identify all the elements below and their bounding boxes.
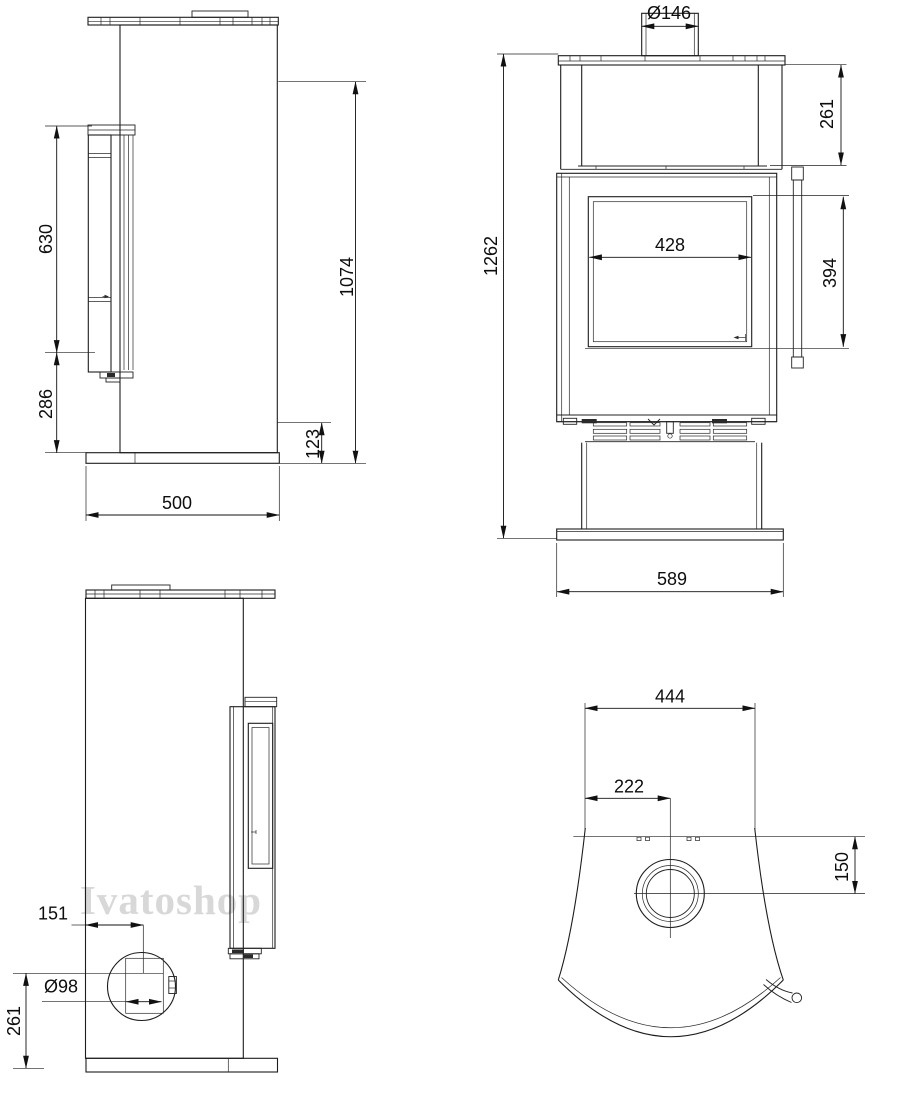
top-plate (558, 56, 785, 65)
door-bottom-hinge-pin (232, 950, 244, 954)
door-frame-panel (111, 135, 120, 372)
dim-label-glass-width: 428 (655, 235, 685, 255)
door-bottom-hinge (106, 378, 120, 382)
side-view-bottom-left: 151 Ø98 261 (4, 585, 278, 1072)
glass-outer (588, 197, 751, 347)
dim-label-total-height: 1262 (481, 236, 501, 276)
grille-slot (680, 436, 710, 440)
right-side-edge (755, 828, 784, 980)
top-view: 444 222 150 (558, 687, 865, 1037)
hinge-pin (712, 419, 727, 423)
grille-slot (593, 423, 626, 426)
rear-outlet-pipe (126, 958, 164, 1013)
left-side-edge (558, 828, 585, 980)
technical-drawing-page: Ivatoshop (0, 0, 900, 1094)
edge-tick (696, 837, 700, 840)
base-plate (557, 529, 784, 540)
handle-top-cap (792, 167, 804, 180)
glass-latch-arrow (734, 336, 739, 340)
door-face-panel (88, 135, 111, 372)
dim-label-depth: 500 (162, 493, 192, 513)
edge-tick (637, 837, 641, 840)
dim-label-glass-height: 394 (820, 258, 840, 288)
stove-dimension-drawing: Ivatoshop (0, 0, 900, 1094)
dim-label-overall-height: 1074 (337, 257, 357, 297)
front-curve-outer (558, 980, 783, 1037)
door-bottom-hinge (100, 372, 133, 378)
dim-label-top-offset: 261 (817, 99, 837, 129)
grille-slot (593, 436, 626, 440)
top-cover-box (192, 11, 248, 17)
glass-inner (252, 728, 269, 865)
base-plate (86, 453, 279, 464)
hinge-pin (582, 419, 597, 423)
dim-label-flue-diameter: Ø146 (647, 3, 691, 23)
dim-label-top-width: 444 (655, 687, 685, 707)
grille-latch-pin (668, 434, 672, 438)
front-view: Ø146 (481, 3, 849, 597)
handle-bar (793, 180, 801, 357)
glass-inner (593, 202, 746, 342)
door-bottom-hinge-pin (107, 373, 115, 377)
grille-slot (713, 436, 746, 440)
front-curve-inner (562, 978, 781, 1028)
base-plate (86, 1058, 278, 1072)
dim-label-outlet-offset: 151 (38, 904, 68, 924)
handle-knob (792, 993, 802, 1003)
rear-outlet-circle (108, 953, 176, 1021)
door-bottom-hinge-pin (243, 955, 253, 959)
grille-slot (713, 429, 746, 433)
door-frame (557, 173, 777, 421)
handle-bottom-cap (792, 357, 804, 368)
dim-label-door-height: 630 (36, 224, 56, 254)
grille-latch (667, 422, 674, 434)
edge-tick (687, 837, 691, 840)
dim-label-flue-offset: 150 (832, 852, 852, 882)
dim-label-base-width: 589 (657, 569, 687, 589)
grille-slot (680, 423, 710, 426)
stove-body (86, 598, 244, 1058)
edge-tick (646, 837, 650, 840)
grille-slot (593, 429, 626, 433)
stove-body (120, 25, 277, 453)
grille-slot (630, 436, 660, 440)
dim-label-outlet-height: 261 (4, 1006, 24, 1036)
grille-slot (680, 429, 710, 433)
watermark-text: Ivatoshop (80, 877, 262, 923)
dim-label-base-height: 123 (303, 429, 323, 459)
grille-slot (630, 429, 660, 433)
top-cover-box (112, 585, 170, 590)
dim-label-half-width: 222 (614, 777, 644, 797)
dim-label-lower-height: 286 (36, 389, 56, 419)
side-view-top-left: 630 286 1074 123 500 (36, 11, 366, 521)
dim-label-outlet-diameter: Ø98 (44, 977, 78, 997)
